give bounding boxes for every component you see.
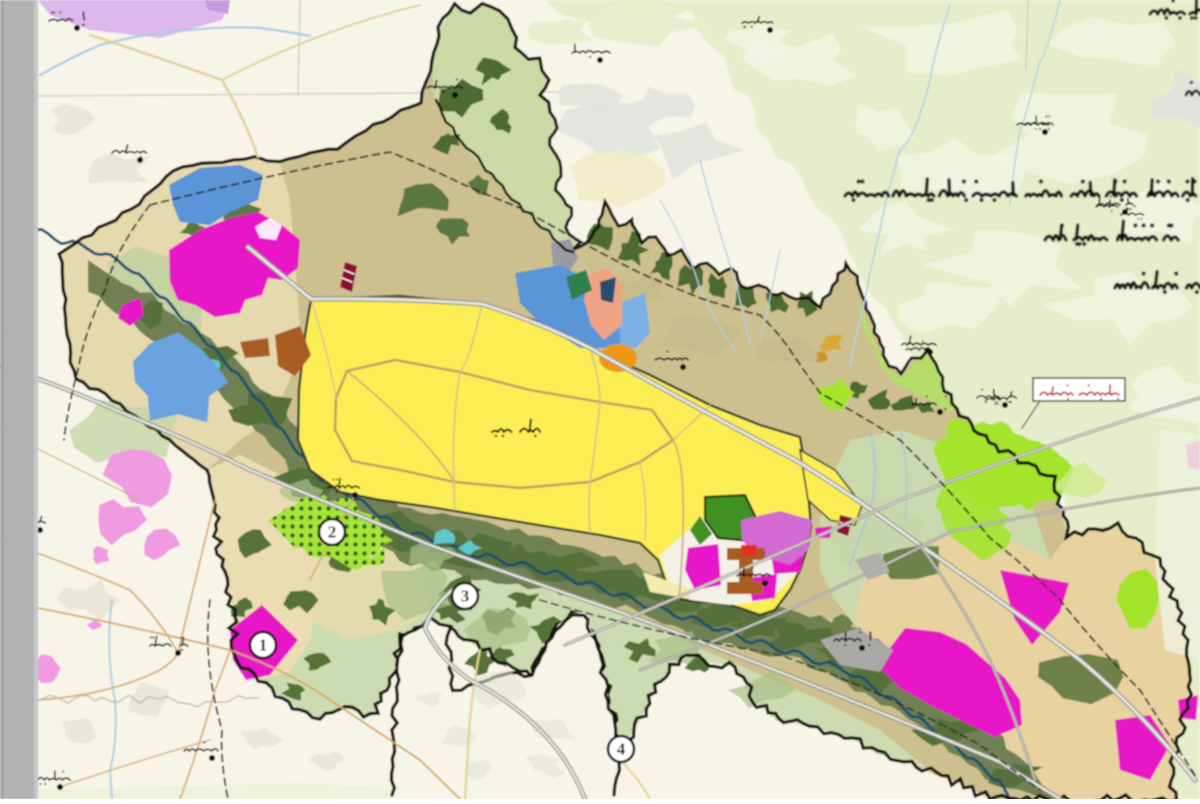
svg-text:2: 2: [328, 523, 337, 542]
svg-text:1: 1: [259, 636, 268, 655]
svg-text:3: 3: [461, 587, 470, 606]
svg-text:4: 4: [617, 740, 626, 759]
